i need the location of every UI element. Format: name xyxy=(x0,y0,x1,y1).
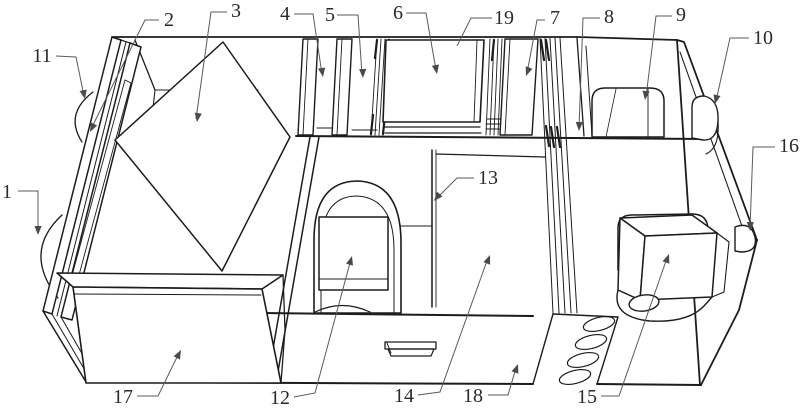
patent-figure-page: 1 2 3 4 5 6 7 8 9 10 11 12 13 14 15 16 1… xyxy=(0,0,800,414)
ref-label-10: 10 xyxy=(753,27,773,49)
filter-slab-4 xyxy=(298,39,318,135)
ref-label-13: 13 xyxy=(478,167,498,189)
ref-label-14: 14 xyxy=(394,385,414,407)
ref-label-9: 9 xyxy=(676,4,686,26)
technical-drawing-canvas: 1 2 3 4 5 6 7 8 9 10 11 12 13 14 15 16 1… xyxy=(0,0,800,414)
blower-unit-right xyxy=(617,215,729,321)
ref-label-6: 6 xyxy=(393,2,403,24)
upper-right-fan xyxy=(592,88,718,154)
ref-label-5: 5 xyxy=(325,4,335,26)
ref-label-11: 11 xyxy=(32,45,51,67)
ref-label-17: 17 xyxy=(113,386,133,408)
central-blower xyxy=(314,181,432,313)
ref-label-18: 18 xyxy=(463,385,483,407)
heat-exchange-core xyxy=(540,38,577,313)
front-drawer-box xyxy=(57,273,285,383)
ref-label-4: 4 xyxy=(280,3,290,25)
handle-slot xyxy=(385,342,436,356)
ref-label-12: 12 xyxy=(270,387,290,409)
ref-label-3: 3 xyxy=(231,0,241,22)
ref-label-16: 16 xyxy=(779,135,799,157)
pleated-pack-b xyxy=(486,39,502,135)
inclined-plate xyxy=(115,42,290,271)
ref-label-15: 15 xyxy=(577,386,597,408)
fan-collar-upper xyxy=(692,96,718,140)
ref-label-19: 19 xyxy=(494,7,514,29)
fan-collar-lower xyxy=(735,225,755,252)
filter-slab-5 xyxy=(332,39,352,135)
ref-label-7: 7 xyxy=(550,7,560,29)
ref-label-8: 8 xyxy=(604,6,614,28)
ref-label-1: 1 xyxy=(2,181,12,203)
ref-label-2: 2 xyxy=(164,9,174,31)
